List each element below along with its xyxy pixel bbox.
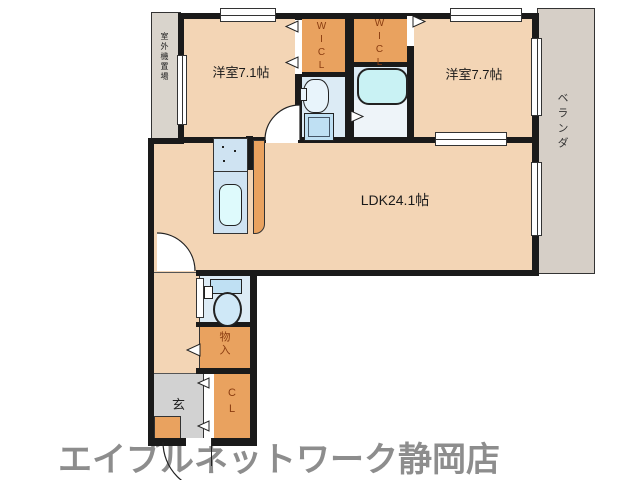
door-triangle-bedroom2 — [412, 15, 426, 28]
storage-label: 物入 — [218, 331, 229, 367]
washbasin-tab — [300, 88, 307, 101]
floor-plan-canvas: エイブルネットワーク静岡店 ベランダ 室外機置場 — [0, 0, 640, 480]
slider-bedroom2-ldk — [435, 132, 507, 146]
stove-burner-dot — [223, 160, 225, 162]
ldk-label: LDK24.1帖 — [330, 190, 460, 210]
wall-left-lower — [148, 138, 154, 446]
washing-machine-inner — [308, 117, 330, 137]
kitchen-sink-icon — [219, 184, 242, 226]
bedroom2-label: 洋室7.7帖 — [414, 64, 534, 83]
bathtub-icon — [357, 68, 408, 105]
entrance-door-leaf — [211, 438, 212, 466]
washing-machine-icon — [304, 113, 334, 141]
window-bedroom1-top — [220, 8, 276, 22]
outdoor-unit-label: 室外機置場 — [160, 32, 168, 124]
stove-burner-dot — [234, 150, 236, 152]
door-swing-arc-bedroom1 — [263, 103, 303, 144]
entry-label: 玄 — [172, 394, 185, 413]
window-ldk-veranda — [531, 162, 542, 236]
door-triangle-bath — [350, 110, 364, 123]
closet-label: CL — [226, 387, 237, 429]
door-triangle-storage — [186, 343, 201, 357]
window-bedroom2-top — [450, 8, 522, 22]
toilet-icon — [213, 292, 242, 327]
floor-plan: ベランダ 室外機置場 — [0, 0, 640, 480]
kitchen-counter — [253, 140, 265, 234]
toilet-door — [196, 278, 204, 318]
wic2-label: WICL — [374, 18, 384, 64]
toilet-handle — [204, 286, 213, 299]
wall-storage-bottom — [196, 368, 257, 374]
wall-lower-column-right — [250, 273, 257, 446]
door-swing-arc-ldk — [156, 232, 198, 274]
kitchen-stove-icon — [213, 138, 248, 173]
door-triangle-wic1-top — [285, 20, 299, 33]
wic1-label: WICL — [316, 21, 326, 73]
bedroom1-label: 洋室7.1帖 — [185, 62, 297, 81]
door-triangle-closet-top — [197, 377, 210, 389]
door-swing-arc-entrance — [160, 442, 214, 480]
wall-ldk-bottom — [196, 270, 539, 276]
door-triangle-closet-bottom — [197, 420, 210, 432]
veranda-label: ベランダ — [556, 92, 567, 202]
stove-burner-dot — [222, 146, 224, 148]
